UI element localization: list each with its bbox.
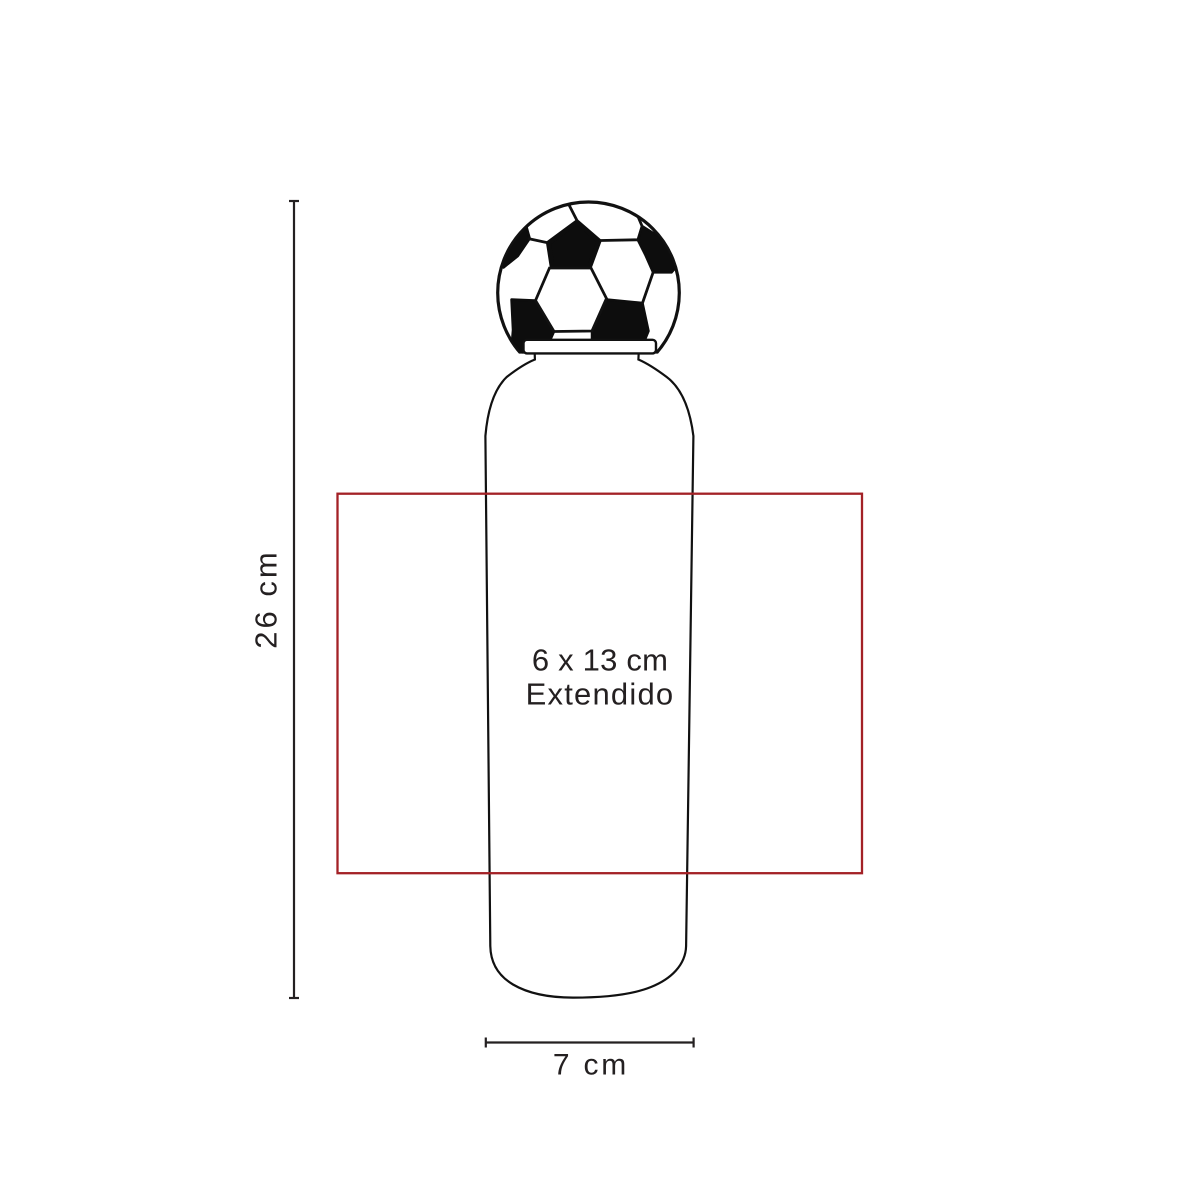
svg-text:Extendido: Extendido (526, 677, 675, 712)
svg-text:26 cm: 26 cm (249, 549, 284, 648)
svg-text:7 cm: 7 cm (553, 1049, 629, 1082)
svg-text:6 x 13 cm: 6 x 13 cm (532, 643, 668, 678)
